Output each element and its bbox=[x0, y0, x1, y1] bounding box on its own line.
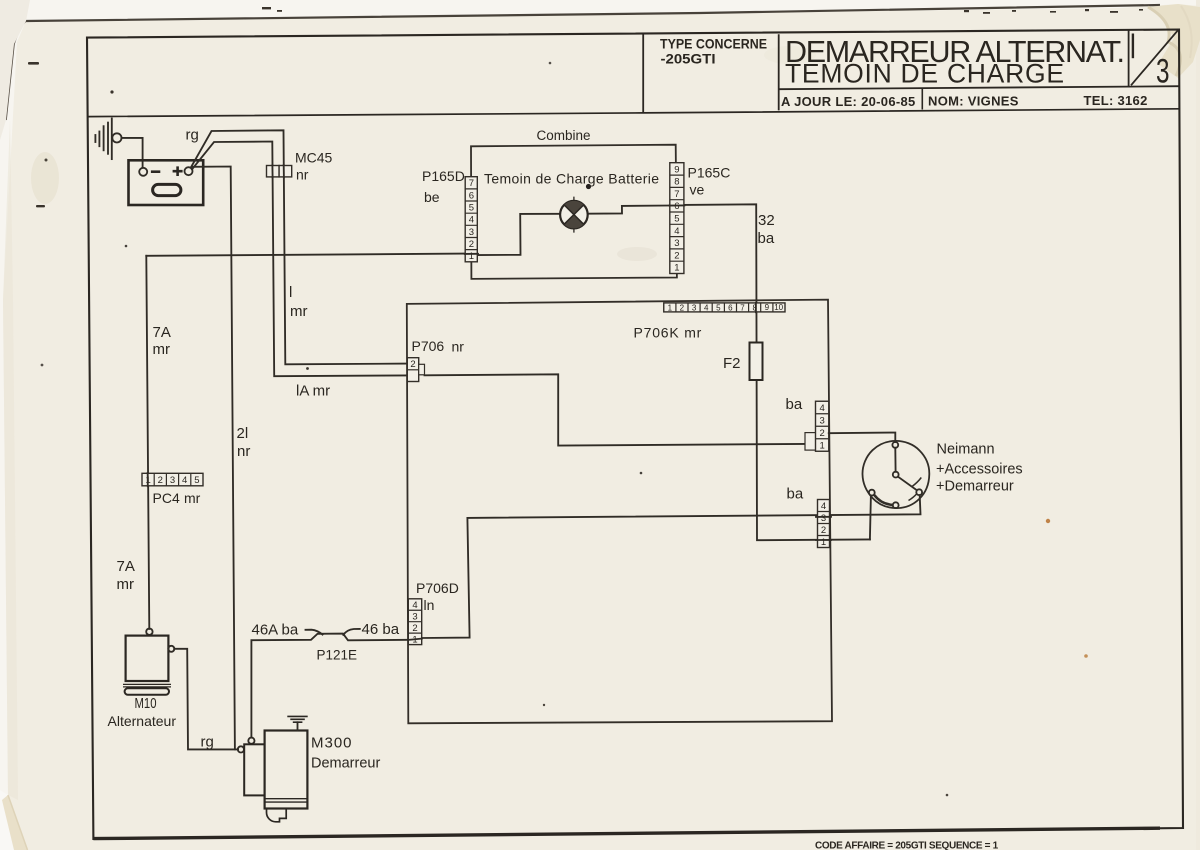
svg-text:Temoin de Charge Batterie: Temoin de Charge Batterie bbox=[484, 171, 659, 187]
svg-text:3: 3 bbox=[170, 475, 175, 486]
svg-text:be: be bbox=[424, 189, 440, 205]
svg-text:7A: 7A bbox=[117, 558, 135, 575]
svg-text:-205GTI: -205GTI bbox=[661, 51, 716, 66]
svg-text:7A: 7A bbox=[153, 324, 171, 341]
svg-text:6: 6 bbox=[469, 190, 474, 201]
svg-text:9: 9 bbox=[674, 164, 679, 175]
svg-text:1: 1 bbox=[821, 537, 826, 548]
svg-text:9: 9 bbox=[765, 303, 770, 312]
svg-text:mr: mr bbox=[153, 341, 171, 358]
svg-text:mr: mr bbox=[117, 576, 135, 593]
svg-text:TYPE CONCERNE: TYPE CONCERNE bbox=[660, 36, 767, 51]
svg-text:4: 4 bbox=[819, 403, 824, 414]
svg-text:CODE AFFAIRE = 205GTI SEQUENCE: CODE AFFAIRE = 205GTI SEQUENCE = 1 bbox=[815, 841, 999, 850]
svg-text:ve: ve bbox=[690, 182, 705, 198]
svg-text:6: 6 bbox=[674, 201, 679, 212]
svg-text:1: 1 bbox=[469, 251, 474, 262]
svg-text:3: 3 bbox=[1156, 53, 1170, 91]
svg-text:ln: ln bbox=[424, 597, 435, 613]
svg-text:5: 5 bbox=[469, 203, 474, 214]
svg-text:NOM: VIGNES: NOM: VIGNES bbox=[928, 94, 1019, 109]
svg-text:Alternateur: Alternateur bbox=[108, 713, 177, 729]
svg-text:M10: M10 bbox=[135, 695, 157, 712]
svg-text:P706D: P706D bbox=[416, 580, 459, 596]
svg-text:3: 3 bbox=[469, 227, 474, 238]
svg-text:lA mr: lA mr bbox=[296, 383, 330, 400]
svg-text:P121E: P121E bbox=[317, 648, 358, 663]
svg-text:+Accessoires: +Accessoires bbox=[936, 462, 1023, 478]
svg-text:2: 2 bbox=[819, 428, 824, 439]
svg-text:F2: F2 bbox=[723, 355, 741, 372]
svg-text:ba: ba bbox=[758, 230, 775, 247]
svg-text:rg: rg bbox=[186, 127, 199, 144]
svg-text:TEMOIN DE CHARGE: TEMOIN DE CHARGE bbox=[785, 59, 1064, 89]
svg-text:mr: mr bbox=[290, 303, 308, 320]
svg-text:46A ba: 46A ba bbox=[252, 622, 299, 639]
svg-text:2: 2 bbox=[680, 304, 685, 313]
svg-text:ba: ba bbox=[786, 396, 803, 413]
svg-text:4: 4 bbox=[674, 226, 679, 237]
svg-text:4: 4 bbox=[182, 475, 187, 486]
svg-text:10: 10 bbox=[774, 303, 783, 312]
svg-text:3: 3 bbox=[674, 238, 679, 249]
svg-text:P706K mr: P706K mr bbox=[634, 325, 703, 341]
svg-text:6: 6 bbox=[728, 303, 733, 312]
svg-text:MC45: MC45 bbox=[295, 150, 333, 166]
svg-text:1: 1 bbox=[674, 263, 679, 274]
svg-text:3: 3 bbox=[692, 304, 697, 313]
svg-text:8: 8 bbox=[674, 177, 679, 188]
svg-text:7: 7 bbox=[674, 189, 679, 200]
svg-text:2: 2 bbox=[821, 525, 826, 536]
svg-text:46 ba: 46 ba bbox=[362, 621, 400, 638]
svg-text:7: 7 bbox=[740, 303, 745, 312]
svg-text:nr: nr bbox=[237, 443, 250, 460]
svg-text:P706: P706 bbox=[412, 338, 445, 354]
svg-text:3: 3 bbox=[412, 611, 417, 622]
svg-text:PC4: PC4 bbox=[153, 490, 180, 506]
svg-text:M300: M300 bbox=[311, 735, 353, 752]
svg-text:nr: nr bbox=[452, 339, 465, 355]
svg-text:5: 5 bbox=[674, 214, 679, 225]
svg-text:2: 2 bbox=[469, 239, 474, 250]
svg-text:P165D: P165D bbox=[422, 168, 465, 184]
svg-text:ba: ba bbox=[787, 486, 804, 503]
svg-text:2: 2 bbox=[674, 250, 679, 261]
svg-text:4: 4 bbox=[469, 215, 474, 226]
svg-text:+Demarreur: +Demarreur bbox=[936, 479, 1014, 495]
svg-text:5: 5 bbox=[194, 475, 199, 486]
svg-text:mr: mr bbox=[184, 490, 201, 506]
svg-text:P165C: P165C bbox=[688, 165, 731, 181]
svg-text:4: 4 bbox=[412, 600, 417, 611]
svg-text:4: 4 bbox=[821, 501, 826, 512]
svg-text:5: 5 bbox=[716, 303, 721, 312]
svg-text:Neimann: Neimann bbox=[937, 442, 995, 458]
svg-text:TEL: 3162: TEL: 3162 bbox=[1084, 93, 1148, 108]
svg-text:rg: rg bbox=[201, 734, 214, 751]
svg-text:2: 2 bbox=[412, 623, 417, 634]
svg-text:4: 4 bbox=[704, 304, 709, 313]
svg-text:1: 1 bbox=[668, 304, 673, 313]
svg-text:nr: nr bbox=[296, 167, 309, 183]
svg-text:l: l bbox=[289, 284, 292, 301]
svg-text:32: 32 bbox=[758, 212, 775, 229]
svg-text:Combine: Combine bbox=[537, 128, 591, 143]
svg-text:3: 3 bbox=[819, 415, 824, 426]
svg-text:2: 2 bbox=[410, 359, 415, 370]
svg-text:2l: 2l bbox=[237, 425, 249, 442]
svg-text:A JOUR LE: 20-06-85: A JOUR LE: 20-06-85 bbox=[781, 94, 916, 109]
svg-text:3: 3 bbox=[821, 513, 826, 524]
svg-text:2: 2 bbox=[158, 475, 163, 486]
svg-text:1: 1 bbox=[819, 440, 824, 451]
svg-text:7: 7 bbox=[469, 178, 474, 189]
svg-text:Demarreur: Demarreur bbox=[311, 756, 380, 772]
